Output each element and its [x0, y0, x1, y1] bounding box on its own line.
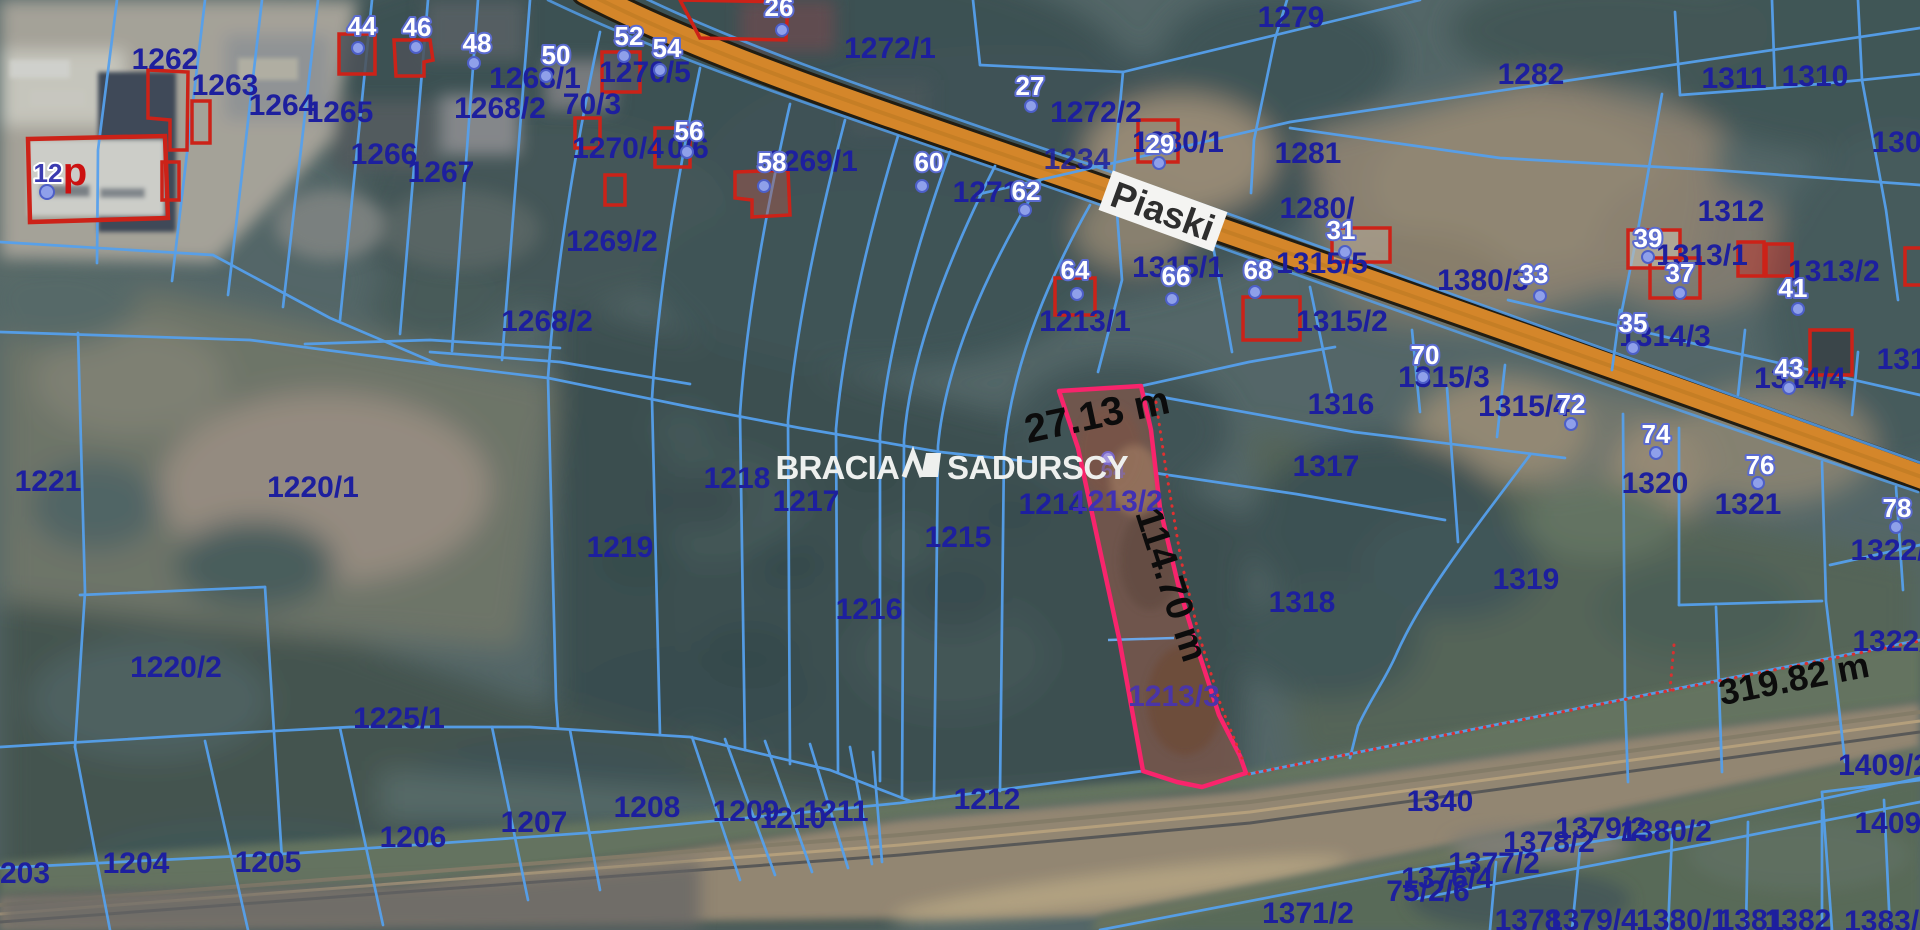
svg-text:1219: 1219 [587, 531, 654, 564]
svg-text:72: 72 [1557, 389, 1586, 419]
svg-text:1272/1: 1272/1 [844, 32, 936, 65]
svg-text:27: 27 [1016, 71, 1045, 101]
svg-text:1205: 1205 [235, 846, 302, 879]
svg-text:52: 52 [615, 21, 644, 51]
svg-text:1207: 1207 [501, 806, 568, 839]
svg-text:44: 44 [348, 11, 377, 41]
svg-text:1213/1: 1213/1 [1039, 305, 1131, 338]
svg-text:64: 64 [1061, 255, 1090, 285]
svg-text:76: 76 [1746, 450, 1775, 480]
svg-text:35: 35 [1619, 308, 1648, 338]
svg-text:1319: 1319 [1493, 563, 1560, 596]
svg-text:1409/: 1409/ [1854, 807, 1920, 840]
svg-text:1380/1: 1380/1 [1636, 904, 1728, 930]
svg-text:1382: 1382 [1765, 904, 1832, 930]
svg-text:1217: 1217 [773, 485, 840, 518]
svg-text:1310: 1310 [1782, 60, 1849, 93]
svg-text:1268/2: 1268/2 [454, 92, 546, 125]
svg-text:1318: 1318 [1269, 586, 1336, 619]
svg-text:1208: 1208 [614, 791, 681, 824]
svg-text:1212: 1212 [954, 783, 1021, 816]
svg-text:12: 12 [34, 158, 63, 188]
svg-text:1213/3: 1213/3 [1128, 680, 1220, 713]
svg-text:1218: 1218 [704, 462, 771, 495]
svg-text:1204: 1204 [103, 847, 170, 880]
svg-text:1317: 1317 [1293, 450, 1360, 483]
svg-text:1215: 1215 [925, 521, 992, 554]
svg-text:1206: 1206 [380, 821, 447, 854]
svg-text:1380/3: 1380/3 [1437, 264, 1529, 297]
svg-text:48: 48 [463, 28, 492, 58]
svg-text:1268/2: 1268/2 [501, 305, 593, 338]
svg-text:1220/1: 1220/1 [267, 471, 359, 504]
svg-text:70/3: 70/3 [563, 88, 621, 121]
svg-text:1216: 1216 [836, 593, 903, 626]
svg-text:33: 33 [1520, 259, 1549, 289]
svg-text:1311: 1311 [1701, 62, 1766, 95]
svg-text:46: 46 [403, 12, 432, 42]
svg-text:1225/1: 1225/1 [353, 702, 445, 735]
svg-text:39: 39 [1634, 223, 1663, 253]
svg-text:37: 37 [1666, 258, 1695, 288]
svg-text:50: 50 [542, 40, 571, 70]
svg-text:1220/2: 1220/2 [130, 651, 222, 684]
svg-text:1315/5: 1315/5 [1276, 247, 1368, 280]
svg-text:1314: 1314 [1877, 343, 1920, 376]
svg-text:1379/4: 1379/4 [1546, 904, 1638, 930]
svg-text:66: 66 [1162, 261, 1191, 291]
svg-text:1279: 1279 [1258, 1, 1325, 34]
svg-text:60: 60 [915, 147, 944, 177]
svg-text:74: 74 [1642, 419, 1671, 449]
svg-text:1234: 1234 [1044, 143, 1111, 176]
svg-text:75/2/6: 75/2/6 [1386, 875, 1469, 908]
svg-text:1409/2: 1409/2 [1838, 749, 1920, 782]
svg-text:1221: 1221 [15, 465, 82, 498]
svg-text:1282: 1282 [1498, 58, 1565, 91]
svg-text:1264: 1264 [249, 89, 316, 122]
svg-text:1211: 1211 [803, 795, 868, 828]
svg-text:1320: 1320 [1622, 467, 1689, 500]
svg-text:1281: 1281 [1275, 137, 1342, 170]
svg-text:70: 70 [1411, 340, 1440, 370]
svg-text:41: 41 [1779, 273, 1808, 303]
svg-text:1371/2: 1371/2 [1262, 897, 1354, 930]
svg-text:26: 26 [765, 0, 794, 22]
svg-text:1269/2: 1269/2 [566, 225, 658, 258]
svg-text:29: 29 [1146, 129, 1175, 159]
svg-text:1322/: 1322/ [1850, 534, 1920, 567]
svg-text:1272/2: 1272/2 [1050, 96, 1142, 129]
svg-text:1271: 1271 [953, 176, 1020, 209]
svg-text:SADURSCY: SADURSCY [947, 449, 1129, 486]
svg-text:BRACIA: BRACIA [775, 449, 899, 486]
svg-text:1316: 1316 [1308, 388, 1375, 421]
svg-text:1340: 1340 [1407, 785, 1474, 818]
svg-text:78: 78 [1883, 493, 1912, 523]
svg-text:62: 62 [1012, 176, 1041, 206]
svg-text:1312: 1312 [1698, 195, 1765, 228]
svg-text:43: 43 [1775, 353, 1804, 383]
svg-text:1380/2: 1380/2 [1620, 815, 1712, 848]
svg-text:31: 31 [1327, 215, 1356, 245]
svg-text:54: 54 [653, 33, 682, 63]
svg-text:58: 58 [758, 147, 787, 177]
svg-text:1321: 1321 [1715, 488, 1782, 521]
svg-text:1315/2: 1315/2 [1296, 305, 1388, 338]
svg-text:68: 68 [1244, 255, 1273, 285]
svg-text:1262: 1262 [132, 43, 199, 76]
svg-text:1383/3: 1383/3 [1844, 905, 1920, 930]
svg-text:203: 203 [0, 857, 50, 890]
svg-text:1267: 1267 [408, 156, 475, 189]
svg-text:p: p [63, 150, 87, 194]
svg-text:1309: 1309 [1872, 126, 1920, 159]
svg-text:1265: 1265 [307, 96, 374, 129]
svg-text:56: 56 [675, 116, 704, 146]
svg-text:1270/4: 1270/4 [572, 132, 664, 165]
